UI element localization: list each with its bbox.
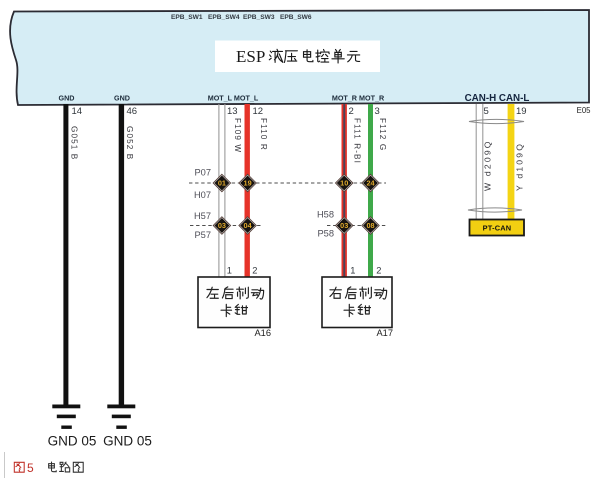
- svg-text:GND 05: GND 05: [48, 434, 97, 449]
- svg-text:24: 24: [366, 179, 375, 188]
- svg-text:3: 3: [375, 106, 380, 117]
- svg-text:10: 10: [340, 179, 348, 188]
- svg-text:H57: H57: [194, 211, 211, 221]
- svg-text:MOT_R MOT_R: MOT_R MOT_R: [332, 94, 385, 103]
- svg-text:F111 R-BI: F111 R-BI: [353, 118, 362, 164]
- svg-text:A17: A17: [376, 328, 393, 338]
- svg-text:13: 13: [227, 106, 238, 117]
- svg-text:03: 03: [340, 221, 348, 230]
- svg-text:F109 W: F109 W: [233, 118, 242, 153]
- svg-text:2: 2: [252, 266, 257, 276]
- svg-text:2: 2: [376, 266, 381, 276]
- svg-text:14: 14: [72, 106, 83, 117]
- svg-text:G052 B: G052 B: [125, 126, 134, 160]
- svg-text:W d209Q: W d209Q: [483, 139, 493, 191]
- svg-text:H58: H58: [317, 210, 334, 220]
- svg-text:GND: GND: [114, 94, 130, 103]
- svg-text:P58: P58: [317, 229, 334, 239]
- svg-text:A16: A16: [254, 328, 271, 338]
- svg-text:P07: P07: [194, 168, 211, 178]
- svg-text:ESP: ESP: [236, 47, 265, 66]
- svg-text:EPB_SW1: EPB_SW1: [171, 14, 203, 21]
- svg-text:5: 5: [484, 106, 489, 117]
- svg-text:1: 1: [227, 266, 232, 276]
- svg-text:01: 01: [218, 179, 226, 188]
- svg-text:Y d109Q: Y d109Q: [515, 142, 525, 191]
- svg-text:H07: H07: [194, 190, 211, 200]
- svg-text:03: 03: [218, 221, 226, 230]
- svg-text:MOT_L MOT_L: MOT_L MOT_L: [208, 94, 259, 103]
- svg-text:19: 19: [516, 106, 527, 117]
- svg-text:12: 12: [253, 106, 264, 117]
- svg-text:EPB_SW3: EPB_SW3: [243, 14, 275, 21]
- svg-text:2: 2: [349, 106, 354, 117]
- svg-text:5: 5: [27, 461, 34, 475]
- svg-text:46: 46: [127, 106, 138, 117]
- svg-text:GND: GND: [59, 94, 75, 103]
- svg-text:08: 08: [366, 221, 374, 230]
- svg-text:PT-CAN: PT-CAN: [483, 224, 512, 233]
- svg-text:19: 19: [244, 179, 252, 188]
- svg-text:EPB_SW6: EPB_SW6: [280, 14, 312, 21]
- svg-text:E05: E05: [577, 106, 592, 115]
- svg-text:G051 B: G051 B: [69, 126, 78, 160]
- svg-text:F110 R: F110 R: [259, 118, 268, 151]
- svg-text:GND 05: GND 05: [103, 434, 152, 449]
- svg-text:EPB_SW4: EPB_SW4: [208, 14, 240, 21]
- svg-text:04: 04: [244, 221, 253, 230]
- svg-text:P57: P57: [194, 230, 211, 240]
- svg-text:1: 1: [350, 266, 355, 276]
- svg-text:F112 G: F112 G: [378, 118, 387, 151]
- svg-text:CAN-H CAN-L: CAN-H CAN-L: [465, 93, 530, 104]
